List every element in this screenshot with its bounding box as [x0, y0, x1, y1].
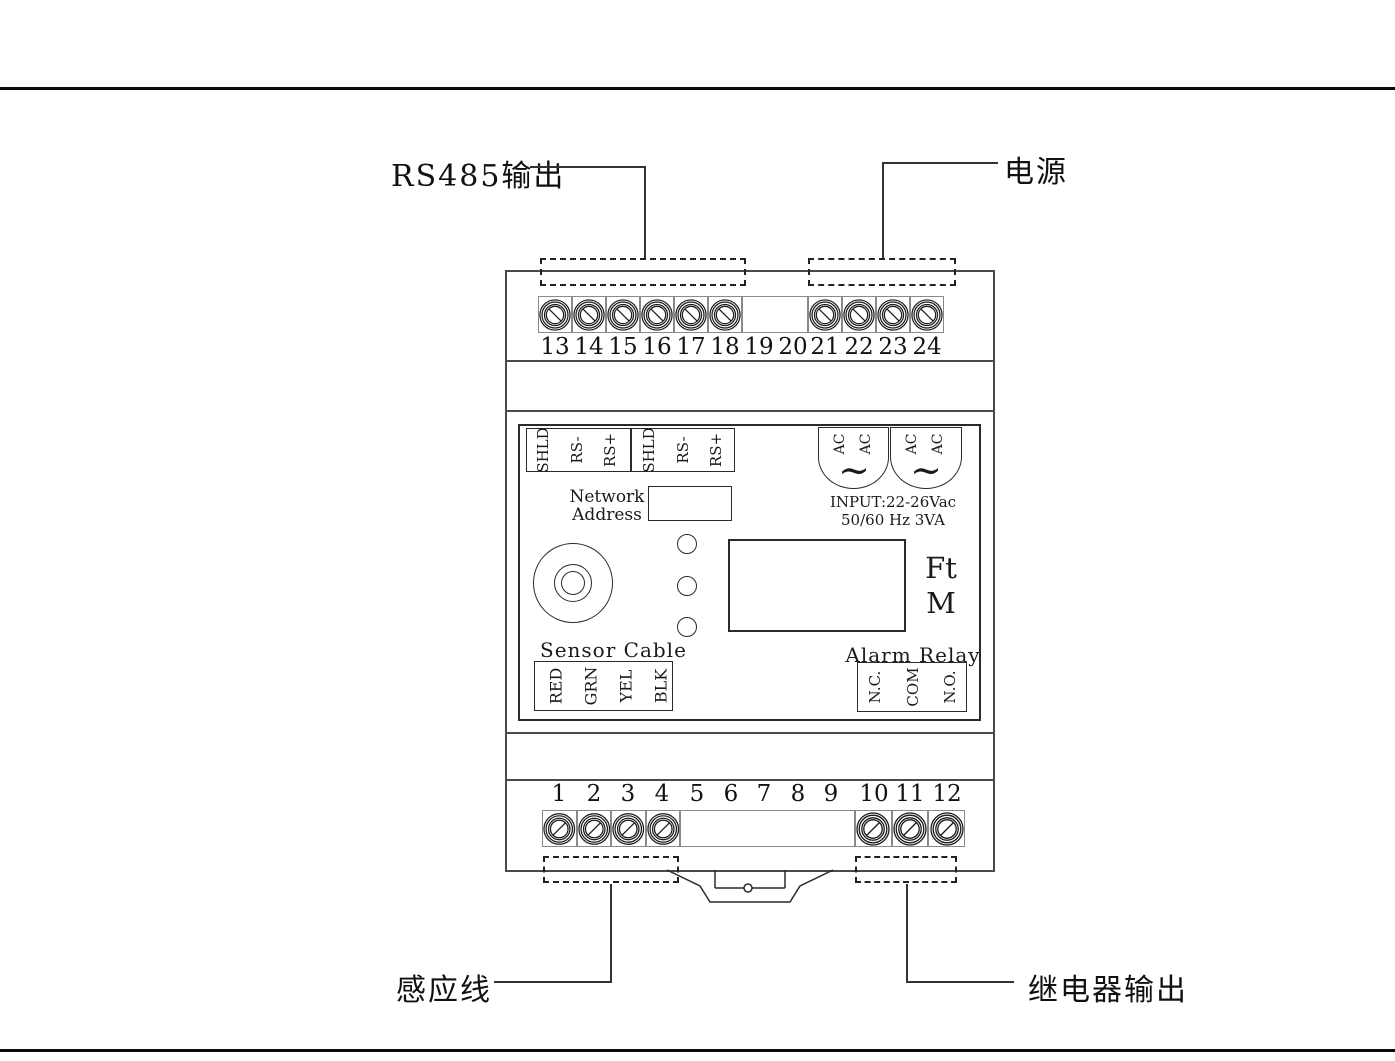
- terminal-number: 2: [587, 781, 602, 807]
- leader-power-vertical: [882, 162, 884, 258]
- frame-bottom-line: [0, 1049, 1395, 1052]
- terminal-label-rs-minus: RS-: [674, 436, 692, 463]
- terminal-cell: [892, 810, 929, 847]
- callout-rs485-output: RS485输出: [391, 151, 565, 195]
- device-band-line: [505, 360, 995, 362]
- ac-wave-icon: ~: [838, 451, 870, 489]
- terminal-number: 21: [810, 334, 839, 360]
- terminal-number: 18: [710, 334, 739, 360]
- terminal-cell: [572, 296, 606, 333]
- terminal-label-rs-plus: RS+: [601, 433, 619, 467]
- wire-label-yel: YEL: [617, 670, 636, 703]
- din-rail-clip: [640, 866, 860, 910]
- display-window: [728, 539, 906, 632]
- leader-relay-vertical: [906, 884, 908, 983]
- screw-terminal-icon: [930, 812, 964, 846]
- terminal-cell: [606, 296, 640, 333]
- terminal-number: 20: [778, 334, 807, 360]
- device-band-line: [505, 732, 995, 734]
- wire-label-grn: GRN: [582, 667, 601, 706]
- terminal-label-shld: SHLD: [534, 427, 552, 472]
- bracket-relay-group: [855, 856, 957, 883]
- screw-terminal-icon: [843, 298, 875, 332]
- terminal-blank-cell: [742, 296, 808, 333]
- rs485-label-box-divider: [630, 428, 632, 472]
- leader-rs485-horizontal: [530, 166, 646, 168]
- screw-terminal-icon: [543, 812, 576, 846]
- screw-terminal-icon: [856, 812, 890, 846]
- terminal-number: 24: [912, 334, 941, 360]
- unit-label-m: M: [916, 586, 966, 620]
- screw-terminal-icon: [877, 298, 909, 332]
- terminal-number: 8: [791, 781, 806, 807]
- terminal-cell: [577, 810, 612, 847]
- terminal-cell: [646, 810, 681, 847]
- screw-terminal-icon: [911, 298, 943, 332]
- leader-relay-horizontal: [906, 981, 1014, 983]
- terminal-number: 4: [655, 781, 670, 807]
- terminal-cell: [674, 296, 708, 333]
- terminal-cell: [640, 296, 674, 333]
- sensor-connector-inner-circle: [561, 571, 585, 595]
- terminal-cell: [855, 810, 892, 847]
- sensor-cable-title: Sensor Cable: [540, 638, 680, 662]
- bracket-rs485-group: [540, 258, 746, 286]
- callout-power: 电源: [1004, 147, 1068, 191]
- terminal-cell: [928, 810, 965, 847]
- terminal-cell: [910, 296, 944, 333]
- terminal-blank-cell: [680, 810, 855, 847]
- terminal-number: 5: [690, 781, 705, 807]
- terminal-number: 16: [642, 334, 671, 360]
- contact-label-no: N.O.: [941, 670, 959, 703]
- terminal-cell: [542, 810, 577, 847]
- bracket-power-group: [808, 258, 956, 286]
- terminal-number: 12: [932, 781, 961, 807]
- network-address-label-line1: Network: [568, 487, 646, 507]
- led-indicator: [677, 617, 697, 637]
- terminal-number: 11: [895, 781, 924, 807]
- terminal-number: 15: [608, 334, 637, 360]
- terminal-cell: [538, 296, 572, 333]
- terminal-number: 17: [676, 334, 705, 360]
- terminal-number: 7: [757, 781, 772, 807]
- unit-label-ft: Ft: [916, 551, 966, 585]
- screw-terminal-icon: [647, 812, 680, 846]
- terminal-number: 13: [540, 334, 569, 360]
- led-indicator: [677, 534, 697, 554]
- leader-power-horizontal: [882, 162, 998, 164]
- terminal-number: 22: [844, 334, 873, 360]
- frame-top-line: [0, 87, 1395, 90]
- terminal-cell: [708, 296, 742, 333]
- wire-label-blk: BLK: [652, 669, 671, 703]
- screw-terminal-icon: [675, 298, 707, 332]
- ac-wave-icon: ~: [910, 451, 942, 489]
- screw-terminal-icon: [809, 298, 841, 332]
- terminal-number: 10: [859, 781, 888, 807]
- power-input-spec-line2: 50/60 Hz 3VA: [818, 511, 968, 529]
- terminal-label-rs-plus: RS+: [707, 433, 725, 467]
- screw-terminal-icon: [539, 298, 571, 332]
- terminal-number: 9: [824, 781, 839, 807]
- screw-terminal-icon: [578, 812, 611, 846]
- terminal-number: 19: [744, 334, 773, 360]
- screw-terminal-icon: [709, 298, 741, 332]
- screw-terminal-icon: [641, 298, 673, 332]
- terminal-number: 3: [621, 781, 636, 807]
- callout-relay-output: 继电器输出: [1028, 965, 1188, 1009]
- terminal-number: 14: [574, 334, 603, 360]
- network-address-label-line2: Address: [568, 505, 646, 525]
- device-band-line: [505, 410, 995, 412]
- terminal-cell: [611, 810, 646, 847]
- leader-sensor-horizontal: [494, 981, 612, 983]
- screw-terminal-icon: [607, 298, 639, 332]
- network-address-switch-box: [648, 486, 732, 521]
- leader-rs485-vertical: [644, 166, 646, 258]
- power-input-spec-line1: INPUT:22-26Vac: [818, 493, 968, 511]
- terminal-number: 23: [878, 334, 907, 360]
- leader-sensor-vertical: [610, 884, 612, 983]
- screw-terminal-icon: [893, 812, 927, 846]
- terminal-cell: [842, 296, 876, 333]
- wire-label-red: RED: [547, 668, 566, 705]
- contact-label-nc: N.C.: [866, 671, 884, 704]
- terminal-number: 6: [724, 781, 739, 807]
- screw-terminal-icon: [612, 812, 645, 846]
- terminal-label-shld: SHLD: [640, 427, 658, 472]
- terminal-label-rs-minus: RS-: [568, 436, 586, 463]
- led-indicator: [677, 576, 697, 596]
- screw-terminal-icon: [573, 298, 605, 332]
- contact-label-com: COM: [904, 667, 922, 706]
- callout-sensor-wire: 感应线: [396, 965, 492, 1009]
- terminal-cell: [876, 296, 910, 333]
- wiring-diagram: RS485输出 电源 感应线 继电器输出 1314151617181920212…: [0, 0, 1395, 1061]
- terminal-number: 1: [552, 781, 567, 807]
- terminal-cell: [808, 296, 842, 333]
